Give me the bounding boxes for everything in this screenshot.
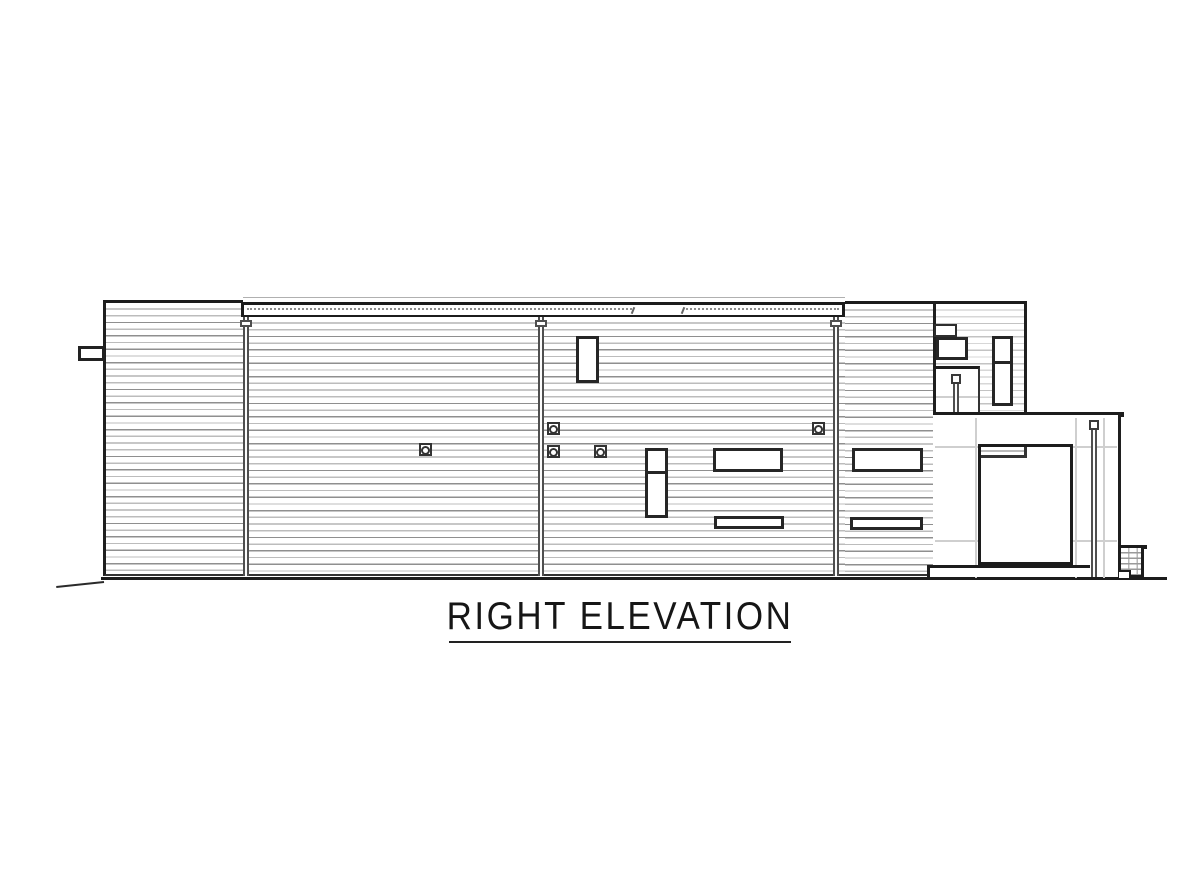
wall-vent [419,443,432,456]
stucco-panel-line [1103,418,1105,578]
garage-roof-overhang [1121,412,1124,417]
window-tall-two-pane [645,448,668,518]
tower-window-vertical [992,336,1013,406]
vent-circle [421,446,430,455]
downspout-1 [243,317,249,576]
niche-post [953,384,959,412]
vent-circle [596,448,605,457]
wall-vent [812,422,825,435]
tower-window-mid [936,337,968,360]
ground-line [101,577,1167,580]
title-underline [449,641,791,643]
brick-pier-cap-lip [1143,545,1147,549]
vent-circle [549,448,558,457]
brick-pier-step [1119,570,1131,578]
wall-left-parapet-section [103,300,243,576]
downspout-bracket [830,320,842,327]
stucco-panel-line [975,418,977,578]
vent-circle [814,425,823,434]
roof-fascia-band [241,302,845,317]
soffit-vent-dotted-line [247,308,839,311]
window-horizontal-2 [852,448,923,472]
window-slim-1 [714,516,784,529]
wall-vent [594,445,607,458]
soffit-vent-gap [632,307,684,315]
window-divider [995,361,1010,364]
wall-right-section [845,301,933,576]
garage-door-window-strip [981,447,1027,458]
downspout-2 [538,317,544,576]
wall-middle-section [243,317,845,576]
scupper-box [78,346,105,361]
tower-window-small [934,324,957,337]
downspout-cap [1089,420,1099,430]
downspout-bracket [240,320,252,327]
wall-vent [547,422,560,435]
garage-door [978,444,1073,565]
downspout-4 [1091,430,1097,577]
wall-vent [547,445,560,458]
roof-edge-line [243,297,845,298]
right-elevation-drawing: RIGHT ELEVATION [0,0,1200,880]
downspout-bracket [535,320,547,327]
stucco-panel-line [1075,418,1077,578]
downspout-3 [833,317,839,576]
window-tall-upper [576,336,599,383]
grade-line-left [56,581,104,588]
window-horizontal-1 [713,448,783,472]
driveway-apron [927,565,1090,577]
window-slim-2 [850,517,923,530]
niche-post-cap [951,374,961,384]
window-divider [648,471,665,474]
vent-circle [549,425,558,434]
drawing-title: RIGHT ELEVATION [420,594,820,639]
